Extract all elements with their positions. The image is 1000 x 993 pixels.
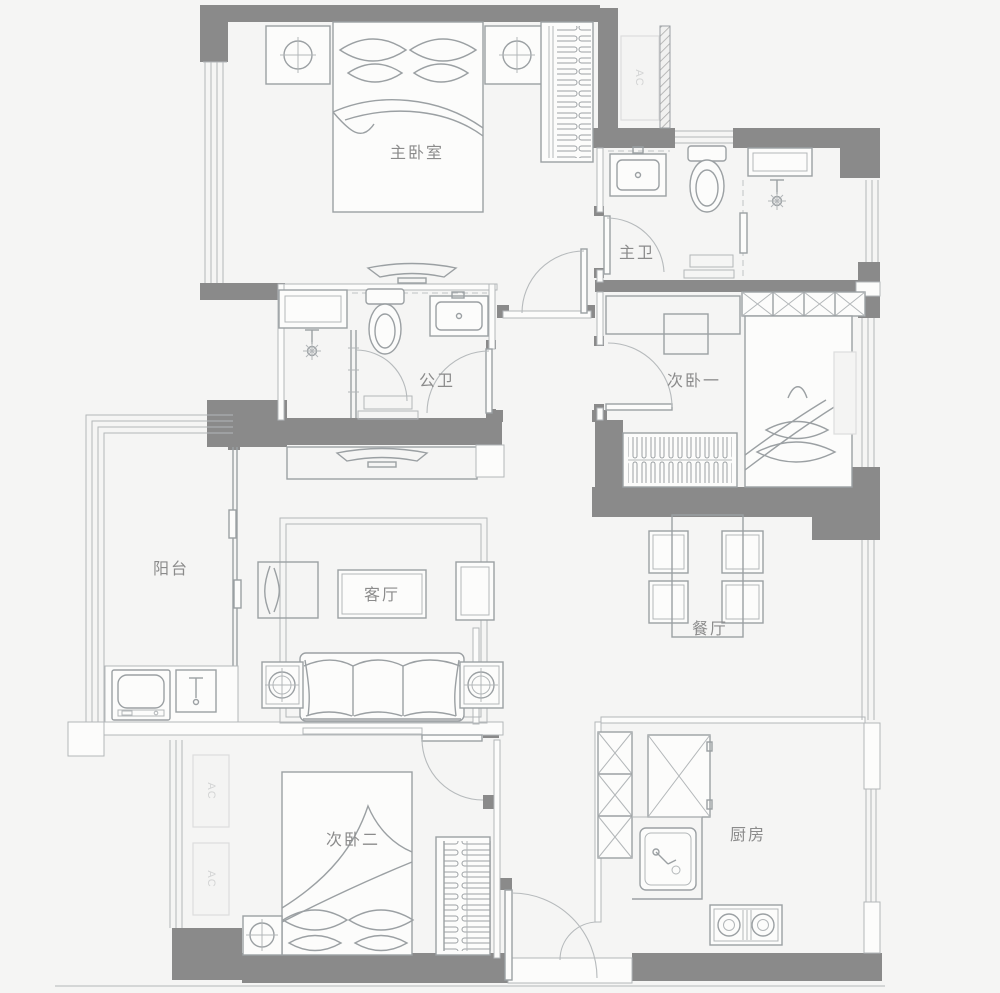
window-bedroom-two bbox=[170, 740, 182, 928]
room-label-bedroom-one: 次卧一 bbox=[667, 372, 721, 390]
sink-master-bathroom bbox=[610, 147, 666, 196]
room-label-balcony: 阳台 bbox=[153, 560, 189, 578]
room-master-bathroom: 主卫 bbox=[604, 146, 812, 280]
sink-guest-bathroom bbox=[430, 292, 488, 336]
window-bedroom-one bbox=[862, 318, 874, 467]
room-label-master-bathroom: 主卫 bbox=[619, 244, 655, 262]
door-master-bedroom bbox=[522, 249, 587, 313]
bath-bench-guest bbox=[358, 396, 418, 419]
room-guest-bathroom: 公卫 bbox=[279, 289, 492, 419]
floor-plan-page: 主卧室 AC bbox=[0, 0, 1000, 993]
double-bed bbox=[333, 22, 483, 212]
tv-console-living bbox=[287, 445, 504, 479]
bed-bedroom-two bbox=[282, 772, 413, 955]
door-bedroom-two bbox=[422, 735, 483, 800]
ac-unit-label-left-2: AC bbox=[205, 870, 217, 887]
wardrobe-master bbox=[541, 22, 593, 162]
laundry-sink bbox=[176, 670, 216, 712]
room-bedroom-one: 次卧一 bbox=[606, 292, 865, 487]
room-label-dining: 餐厅 bbox=[692, 620, 728, 638]
room-kitchen: 厨房 bbox=[560, 732, 782, 960]
dining-chair bbox=[649, 581, 688, 623]
overhead-cabinet-bedroom-one bbox=[742, 292, 865, 316]
window-shower-right bbox=[866, 180, 878, 262]
washing-machine bbox=[112, 670, 170, 720]
shower-glass-partition-guest bbox=[348, 330, 359, 418]
nightstand-bedroom-two bbox=[243, 916, 282, 955]
door-kitchen bbox=[560, 922, 598, 960]
dining-chair bbox=[649, 531, 688, 573]
wardrobe-bedroom-two bbox=[436, 837, 490, 955]
room-living-room: 客厅 bbox=[258, 445, 504, 723]
room-label-guest-bathroom: 公卫 bbox=[419, 373, 455, 390]
toilet-master-bathroom bbox=[688, 146, 726, 212]
room-balcony: 阳台 bbox=[86, 415, 241, 722]
kitchen-sink bbox=[640, 828, 696, 890]
end-table-right bbox=[460, 662, 503, 708]
shower-glass-partition-master bbox=[740, 180, 747, 280]
ac-unit-label-top: AC bbox=[633, 69, 645, 86]
floor-plan-drawing: 主卧室 AC bbox=[0, 0, 1000, 993]
bedside-panel bbox=[834, 352, 856, 434]
door-bedroom-one bbox=[606, 343, 672, 410]
window-kitchen bbox=[866, 789, 876, 902]
side-cabinet-living bbox=[456, 562, 494, 620]
toilet-guest-bathroom bbox=[366, 289, 404, 354]
fridge bbox=[648, 735, 712, 817]
door-shower-guest bbox=[356, 350, 407, 401]
room-dining: 餐厅 bbox=[649, 515, 763, 638]
room-label-bedroom-two: 次卧二 bbox=[326, 831, 380, 849]
tv-master-bedroom bbox=[368, 264, 456, 284]
window-dining bbox=[862, 540, 874, 720]
room-label-kitchen: 厨房 bbox=[730, 826, 766, 844]
armchair-living bbox=[258, 562, 318, 618]
room-label-master-bedroom: 主卧室 bbox=[390, 144, 444, 162]
shower-bench-guest bbox=[279, 290, 347, 328]
room-bedroom-two: 次卧二 bbox=[243, 735, 490, 955]
tall-cabinet-kitchen bbox=[598, 732, 632, 858]
room-master-bedroom: 主卧室 bbox=[266, 22, 593, 313]
shower-head-icon-master bbox=[768, 180, 786, 210]
shower-head-icon-guest bbox=[303, 330, 321, 360]
slatted-cabinet-bedroom-one bbox=[623, 433, 737, 487]
ac-platforms-left: AC AC bbox=[193, 755, 229, 915]
nightstand-left bbox=[266, 26, 330, 84]
end-table-left bbox=[262, 662, 303, 708]
sofa bbox=[300, 653, 464, 721]
ac-unit-label-left-1: AC bbox=[205, 782, 217, 799]
window-master-bedroom bbox=[203, 62, 227, 283]
nightstand-right bbox=[485, 26, 549, 84]
window-master-bathroom bbox=[675, 131, 733, 143]
shelf-master-bathroom bbox=[748, 148, 812, 176]
room-label-living-room: 客厅 bbox=[364, 586, 400, 604]
stove bbox=[710, 905, 782, 945]
ac-shaft-top: AC bbox=[621, 26, 670, 128]
